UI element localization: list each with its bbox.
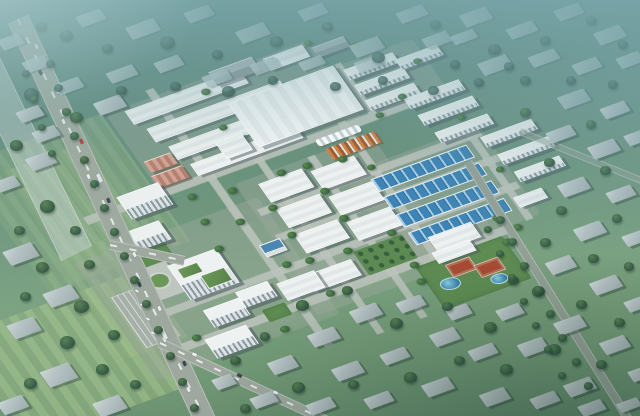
tree [404,372,417,383]
tree [520,76,531,85]
village-building [571,56,603,75]
tree [558,334,567,342]
tree [80,156,89,164]
tree [520,262,529,270]
tree [36,262,49,273]
tree [566,76,576,85]
village-building [529,390,561,409]
tree [348,380,359,389]
village-building [421,376,456,397]
village-building [379,346,411,365]
village-building [587,138,622,159]
tree [534,286,543,294]
tree [154,326,163,334]
tree [116,86,127,95]
tree [38,124,46,131]
tree [532,322,540,329]
tree [268,76,278,85]
village-building [599,335,632,356]
tree [24,378,37,389]
tree [618,40,628,49]
tree [130,276,139,284]
village-building [605,184,637,203]
tree [586,16,597,25]
tree [484,322,497,333]
village-building [105,64,138,84]
tree [372,52,385,63]
tree [62,108,71,116]
village-building [363,390,395,409]
tree [96,364,109,375]
tree [540,36,551,45]
tree [40,200,55,213]
village-building [297,2,329,21]
tree [612,214,622,223]
tree [504,62,514,71]
tree [110,228,119,236]
village-building [589,274,624,295]
village-building [153,54,185,73]
tree [520,298,528,305]
village-building [557,88,592,109]
tree [520,108,531,117]
village-building [545,124,577,143]
village-building [615,51,640,69]
tree [270,36,283,47]
tree [178,378,187,386]
village-building [183,4,215,23]
tree [508,238,517,246]
tree [390,318,403,329]
tree [556,206,567,215]
tree [222,86,235,97]
tree [60,336,75,349]
tree [430,20,441,29]
tree [544,346,552,353]
tree [488,44,501,55]
tree [484,226,492,233]
tree [100,204,109,212]
village-building [557,176,592,197]
village-building [573,220,608,241]
village-building [331,360,366,381]
tree [48,150,56,157]
tree [108,330,120,340]
village-building [627,365,640,382]
tree [454,356,465,365]
tree [10,140,23,151]
tree [212,50,223,59]
tree [450,60,460,69]
village-building [599,100,631,119]
tree [596,360,607,369]
village-building [125,18,162,40]
tree [54,84,63,92]
village-building [429,327,462,348]
tree [160,36,175,49]
tree [378,76,388,85]
tree [240,404,251,413]
tree [496,216,505,224]
tree [588,254,599,263]
tree [292,382,305,393]
office-building [514,155,566,182]
tree [142,300,151,308]
tree [296,300,309,311]
tree [584,382,593,390]
tree [20,292,31,301]
tree [558,372,566,379]
tree [60,30,73,41]
village-building [459,6,494,27]
tree [70,112,83,123]
village-building [621,229,640,247]
tree [102,44,113,53]
park-tree [186,192,199,201]
tree [120,252,129,260]
tree [600,166,611,175]
tree [90,180,99,188]
tree [546,310,555,318]
village-building [553,2,585,21]
village-building [75,8,107,27]
tree [30,96,38,103]
village-building [479,387,512,408]
industrial-park [63,0,595,384]
tree [46,60,55,68]
tree [260,332,270,341]
tree [614,318,625,327]
village-building [450,29,478,46]
tree [74,300,89,313]
tree [624,262,634,271]
village-building [495,303,525,321]
tree [70,132,79,140]
tree [190,404,199,412]
village-building [467,342,499,361]
village-building [235,22,272,44]
village-building [623,129,640,146]
tree [572,358,581,366]
tree [474,78,484,87]
village-building [505,20,538,40]
tree [500,364,513,375]
tree [586,120,596,129]
tree [608,80,618,89]
village-building [527,48,560,68]
aerial-rendering [0,0,640,416]
tree [508,274,516,281]
tree [22,70,30,77]
tree [36,22,47,31]
tree [576,300,587,309]
tree [166,352,175,360]
tree [496,250,504,257]
village-building [577,399,607,416]
village-building [623,295,640,313]
